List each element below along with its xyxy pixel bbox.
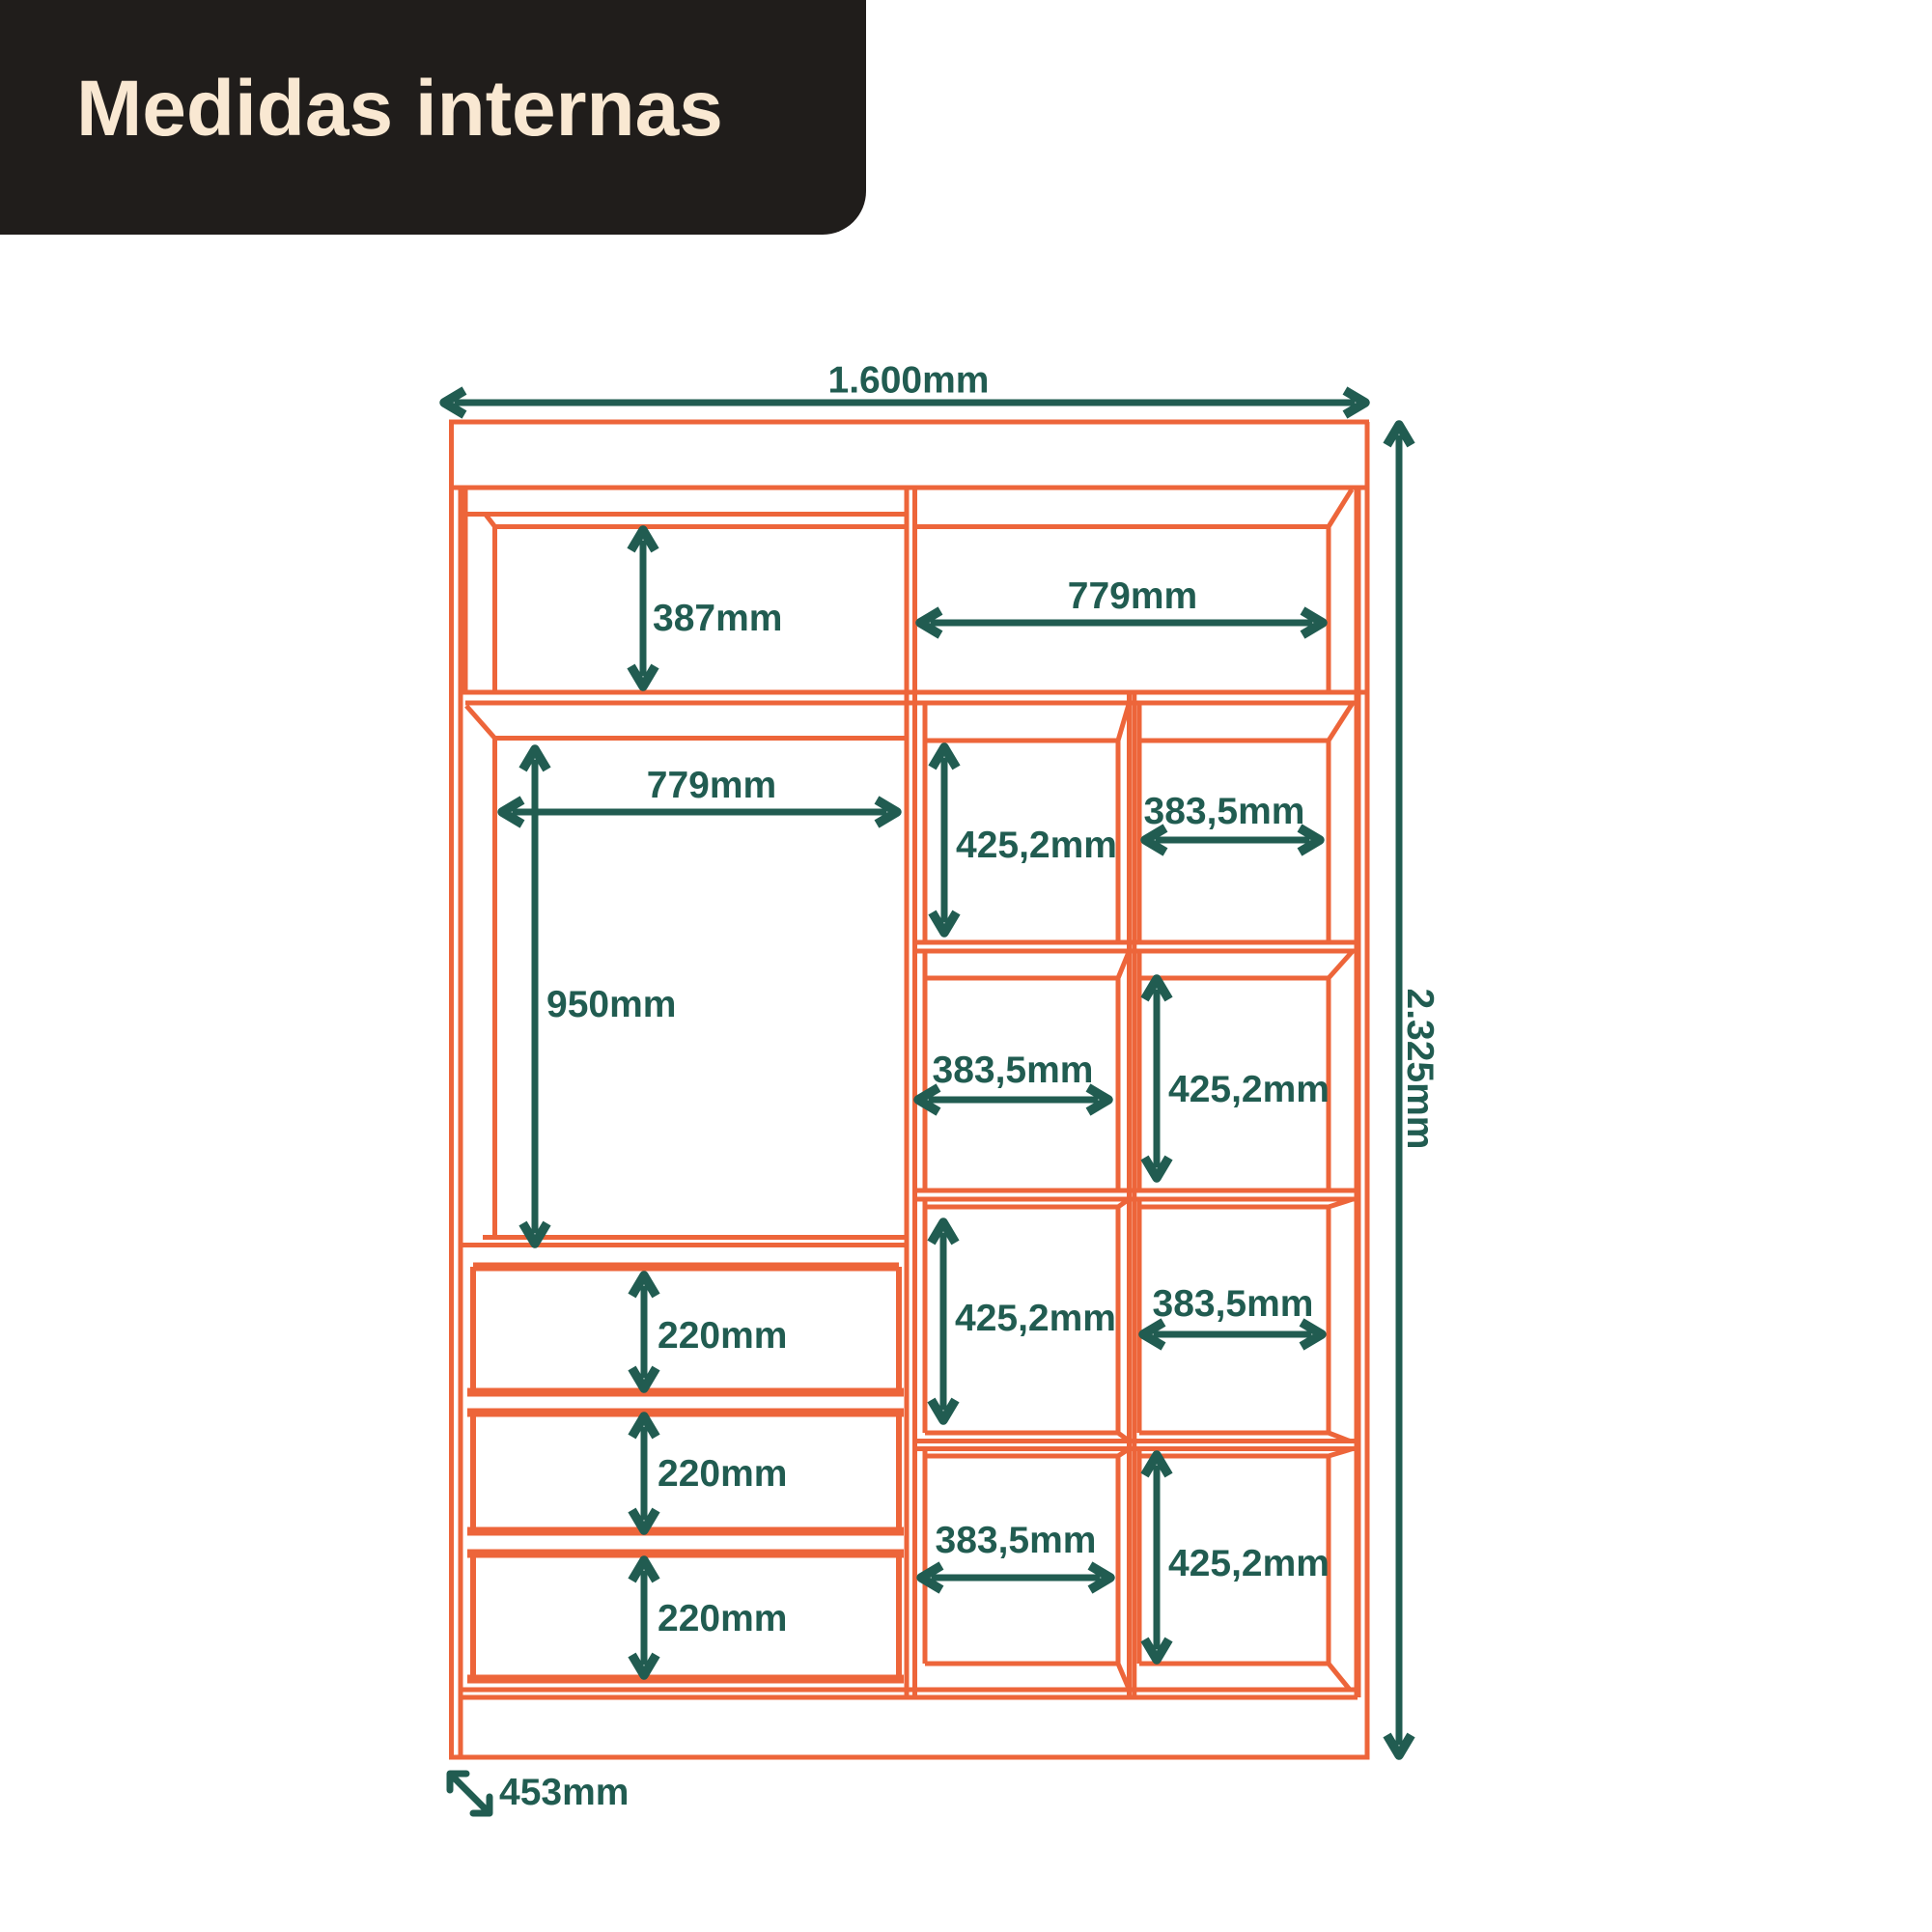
svg-text:383,5mm: 383,5mm <box>1153 1283 1314 1325</box>
svg-text:220mm: 220mm <box>658 1315 787 1357</box>
svg-text:425,2mm: 425,2mm <box>1168 1069 1330 1110</box>
svg-text:453mm: 453mm <box>499 1772 629 1813</box>
svg-text:779mm: 779mm <box>647 765 776 806</box>
svg-text:Medidas internas: Medidas internas <box>76 65 723 153</box>
svg-text:387mm: 387mm <box>653 598 782 639</box>
svg-text:2.325mm: 2.325mm <box>1399 989 1441 1150</box>
svg-text:425,2mm: 425,2mm <box>955 1298 1116 1339</box>
svg-text:383,5mm: 383,5mm <box>936 1520 1097 1561</box>
svg-text:425,2mm: 425,2mm <box>1168 1543 1330 1584</box>
svg-text:425,2mm: 425,2mm <box>956 825 1117 866</box>
svg-text:383,5mm: 383,5mm <box>1144 791 1305 832</box>
svg-text:220mm: 220mm <box>658 1598 787 1639</box>
svg-text:779mm: 779mm <box>1068 575 1197 617</box>
svg-text:950mm: 950mm <box>546 984 676 1025</box>
svg-text:1.600mm: 1.600mm <box>828 360 990 402</box>
svg-text:220mm: 220mm <box>658 1453 787 1495</box>
svg-text:383,5mm: 383,5mm <box>933 1050 1094 1091</box>
